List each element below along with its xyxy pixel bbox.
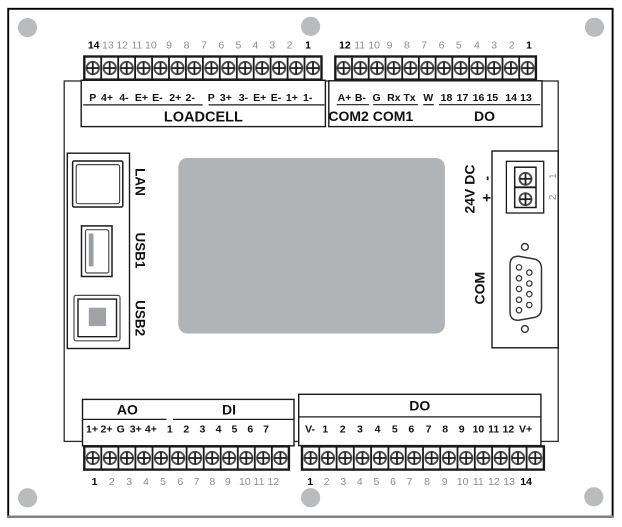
svg-text:16: 16	[473, 92, 485, 104]
svg-text:1: 1	[526, 40, 532, 52]
svg-text:14: 14	[520, 476, 532, 488]
svg-text:1-: 1-	[303, 92, 313, 104]
svg-text:11: 11	[488, 424, 499, 436]
svg-text:DO: DO	[474, 108, 495, 124]
svg-text:G: G	[117, 424, 125, 436]
svg-text:7: 7	[421, 40, 427, 52]
svg-text:2: 2	[509, 40, 515, 52]
svg-text:P: P	[89, 92, 96, 104]
svg-text:12: 12	[116, 40, 128, 52]
svg-text:LOADCELL: LOADCELL	[164, 110, 243, 126]
svg-text:+: +	[479, 194, 495, 202]
svg-text:15: 15	[486, 92, 498, 104]
svg-text:8: 8	[424, 476, 430, 488]
svg-text:2+: 2+	[169, 92, 181, 104]
svg-text:2: 2	[548, 194, 559, 200]
svg-text:G: G	[373, 92, 381, 104]
svg-text:1: 1	[167, 424, 173, 436]
svg-text:3+: 3+	[220, 92, 232, 104]
svg-text:4: 4	[216, 424, 222, 436]
svg-text:2: 2	[183, 424, 189, 436]
svg-text:9: 9	[459, 424, 465, 436]
svg-text:4: 4	[474, 40, 480, 52]
svg-text:9: 9	[442, 476, 448, 488]
svg-text:1: 1	[92, 476, 98, 488]
svg-text:4: 4	[143, 476, 149, 488]
svg-text:V-: V-	[305, 424, 315, 436]
svg-text:W: W	[423, 92, 433, 104]
svg-text:8: 8	[184, 40, 190, 52]
svg-text:1: 1	[548, 173, 559, 179]
svg-text:COM2: COM2	[328, 108, 369, 124]
svg-text:4: 4	[357, 476, 363, 488]
svg-text:Rx: Rx	[387, 92, 401, 104]
svg-text:3: 3	[199, 424, 205, 436]
svg-text:USB1: USB1	[133, 232, 148, 269]
svg-text:12: 12	[488, 476, 500, 488]
svg-text:E-: E-	[271, 92, 282, 104]
svg-text:5: 5	[392, 424, 398, 436]
svg-text:E+: E+	[253, 92, 266, 104]
svg-text:3: 3	[357, 424, 363, 436]
svg-text:4+: 4+	[101, 92, 113, 104]
svg-text:3: 3	[269, 40, 275, 52]
svg-text:12: 12	[339, 40, 351, 52]
svg-text:10: 10	[145, 40, 157, 52]
svg-text:2: 2	[340, 424, 346, 436]
svg-text:DO: DO	[409, 398, 430, 414]
svg-text:4+: 4+	[145, 424, 157, 436]
svg-text:14: 14	[88, 40, 100, 52]
svg-text:11: 11	[131, 40, 142, 52]
svg-text:9: 9	[387, 40, 393, 52]
svg-text:24V DC: 24V DC	[462, 164, 478, 213]
svg-text:B-: B-	[355, 92, 367, 104]
svg-text:5: 5	[160, 476, 166, 488]
svg-text:13: 13	[102, 40, 114, 52]
svg-text:12: 12	[268, 476, 280, 488]
svg-text:8: 8	[209, 476, 215, 488]
svg-text:7: 7	[194, 476, 200, 488]
svg-text:10: 10	[368, 40, 380, 52]
svg-text:2: 2	[287, 40, 293, 52]
svg-text:6: 6	[439, 40, 445, 52]
svg-text:6: 6	[177, 476, 183, 488]
svg-text:11: 11	[354, 40, 365, 52]
svg-text:3: 3	[126, 476, 132, 488]
svg-text:3: 3	[491, 40, 497, 52]
svg-text:COM1: COM1	[373, 108, 414, 124]
svg-text:2+: 2+	[101, 424, 113, 436]
svg-text:5: 5	[235, 40, 241, 52]
svg-text:P: P	[208, 92, 215, 104]
svg-text:2-: 2-	[186, 92, 196, 104]
svg-text:LAN: LAN	[133, 168, 148, 196]
svg-text:9: 9	[225, 476, 231, 488]
svg-text:6: 6	[408, 424, 414, 436]
svg-text:10: 10	[457, 476, 469, 488]
svg-text:1+: 1+	[286, 92, 298, 104]
svg-text:8: 8	[404, 40, 410, 52]
svg-text:6: 6	[390, 476, 396, 488]
svg-text:6: 6	[218, 40, 224, 52]
svg-text:V+: V+	[519, 424, 532, 436]
svg-text:E+: E+	[135, 92, 148, 104]
svg-text:1: 1	[305, 40, 311, 52]
svg-text:Tx: Tx	[403, 92, 415, 104]
svg-text:A+: A+	[338, 92, 352, 104]
svg-text:10: 10	[473, 424, 485, 436]
svg-text:7: 7	[201, 40, 207, 52]
svg-text:12: 12	[503, 424, 515, 436]
svg-text:7: 7	[426, 424, 432, 436]
svg-text:8: 8	[442, 424, 448, 436]
svg-text:7: 7	[406, 476, 412, 488]
svg-text:2: 2	[324, 476, 330, 488]
svg-text:1+: 1+	[86, 424, 98, 436]
svg-text:5: 5	[456, 40, 462, 52]
svg-text:18: 18	[441, 92, 453, 104]
svg-text:10: 10	[239, 476, 251, 488]
svg-text:1: 1	[322, 424, 328, 436]
svg-text:2: 2	[109, 476, 115, 488]
svg-text:11: 11	[254, 476, 265, 488]
svg-text:COM: COM	[471, 272, 487, 305]
svg-text:5: 5	[373, 476, 379, 488]
svg-text:AO: AO	[117, 402, 138, 418]
svg-text:3: 3	[340, 476, 346, 488]
svg-text:4: 4	[375, 424, 381, 436]
svg-text:14: 14	[505, 92, 517, 104]
svg-text:9: 9	[166, 40, 172, 52]
svg-text:E-: E-	[152, 92, 163, 104]
svg-text:6: 6	[247, 424, 253, 436]
svg-text:-: -	[479, 176, 495, 181]
svg-text:USB2: USB2	[133, 300, 148, 336]
svg-text:7: 7	[263, 424, 269, 436]
svg-text:3-: 3-	[239, 92, 249, 104]
svg-text:11: 11	[473, 476, 484, 488]
svg-text:13: 13	[503, 476, 515, 488]
svg-text:3+: 3+	[130, 424, 142, 436]
svg-text:17: 17	[457, 92, 469, 104]
svg-text:4-: 4-	[119, 92, 129, 104]
svg-text:4: 4	[252, 40, 258, 52]
svg-text:5: 5	[231, 424, 237, 436]
svg-text:DI: DI	[222, 402, 236, 418]
svg-text:1: 1	[307, 476, 313, 488]
svg-text:13: 13	[520, 92, 532, 104]
